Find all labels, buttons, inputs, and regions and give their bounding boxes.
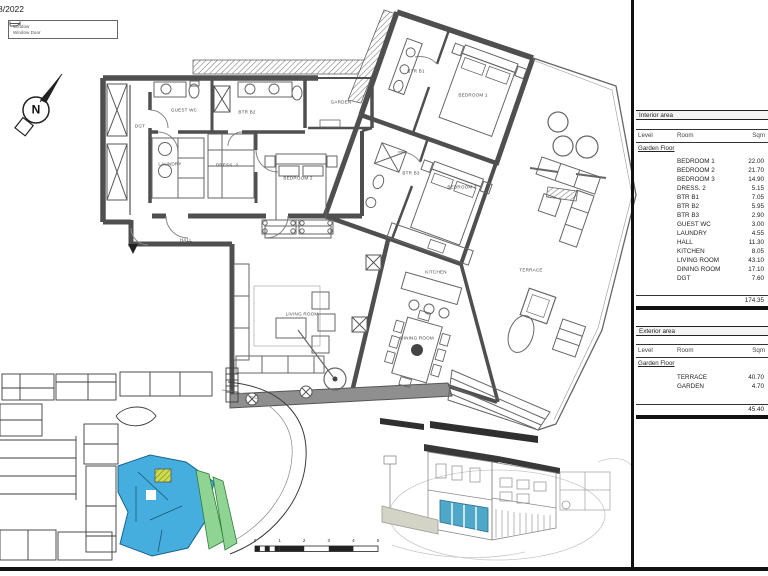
- room-name: BEDROOM 1: [677, 158, 748, 165]
- floor-plan: [103, 10, 636, 430]
- door-arcs: [131, 56, 437, 245]
- room-sqm: 4.70: [752, 383, 764, 390]
- interior-total-bar: [636, 306, 768, 310]
- room-name: DGT: [677, 275, 752, 282]
- rule: [636, 404, 768, 405]
- scale-tick-0: 0: [254, 538, 257, 543]
- room-name: DINING ROOM: [677, 266, 748, 273]
- scale-tick-2: 2: [303, 538, 306, 543]
- interior-row-bedroom-3: BEDROOM 314.90: [636, 175, 766, 184]
- room-sqm: 21.70: [748, 167, 764, 174]
- rule: [636, 295, 768, 296]
- scale-tick-1: 1: [278, 538, 281, 543]
- building-3d-sketch: [380, 418, 632, 560]
- interior-row-btr-b3: BTR B32.90: [636, 211, 766, 220]
- date-label: 8/2022: [0, 4, 24, 14]
- room-label-guest-wc: GUEST WC: [171, 108, 197, 113]
- room-label-terrace: TERRACE: [519, 268, 542, 273]
- sketch-ramp: [382, 506, 438, 534]
- interior-row-living-room: LIVING ROOM43.10: [636, 256, 766, 265]
- room-name: GARDEN: [677, 383, 752, 390]
- room-sqm: 40.70: [748, 374, 764, 381]
- terrace-area: [448, 58, 636, 430]
- room-label-btr-b2: BTR B2: [238, 110, 255, 115]
- rule: [636, 344, 768, 345]
- interior-col-room: Room: [677, 132, 694, 139]
- exterior-row-garden: GARDEN4.70: [636, 382, 766, 391]
- interior-row-kitchen: KITCHEN8.05: [636, 247, 766, 256]
- room-name: DRESS. 2: [677, 185, 752, 192]
- room-sqm: 17.10: [748, 266, 764, 273]
- interior-row-dining-room: DINING ROOM17.10: [636, 265, 766, 274]
- room-sqm: 8.05: [752, 248, 764, 255]
- room-sqm: 43.10: [748, 257, 764, 264]
- room-label-bedroom-3: BEDROOM 3: [447, 185, 476, 190]
- room-name: BTR B1: [677, 194, 752, 201]
- room-sqm: 4.55: [752, 230, 764, 237]
- room-label-hall: HALL: [180, 238, 192, 243]
- room-sqm: 14.90: [748, 176, 764, 183]
- exterior-row-terrace: TERRACE40.70: [636, 373, 766, 382]
- interior-row-dgt: DGT7.60: [636, 274, 766, 283]
- scale-bar: [255, 546, 378, 552]
- legend-window-door: Window Door: [13, 30, 117, 35]
- sheet-bottom-rule: [0, 567, 768, 571]
- interior-row-hall: HALL11.30: [636, 238, 766, 247]
- interior-row-bedroom-2: BEDROOM 221.70: [636, 166, 766, 175]
- legend-box: Window Window Door: [8, 20, 118, 39]
- interior-area-band: Interior area: [636, 110, 768, 120]
- room-name: HALL: [677, 239, 749, 246]
- room-name: TERRACE: [677, 374, 748, 381]
- room-name: KITCHEN: [677, 248, 752, 255]
- exterior-col-level: Level: [638, 347, 653, 354]
- panel-divider-line: [631, 0, 634, 570]
- drawing-layer: [0, 0, 768, 576]
- legend-window-door-label: Window Door: [13, 30, 41, 35]
- interior-row-bedroom-1: BEDROOM 122.00: [636, 157, 766, 166]
- room-sqm: 5.95: [752, 203, 764, 210]
- exterior-rows: TERRACE40.70GARDEN4.70: [636, 373, 766, 391]
- room-name: BEDROOM 2: [677, 167, 748, 174]
- interior-rows: BEDROOM 122.00BEDROOM 221.70BEDROOM 314.…: [636, 157, 766, 283]
- entry-arrow: [128, 244, 138, 254]
- room-name: BTR B3: [677, 212, 752, 219]
- room-sqm: 7.60: [752, 275, 764, 282]
- room-name: BEDROOM 3: [677, 176, 748, 183]
- interior-row-btr-b2: BTR B25.95: [636, 202, 766, 211]
- room-sqm: 11.30: [749, 239, 764, 246]
- window-door-symbol-icon: [9, 21, 21, 27]
- room-sqm: 2.90: [752, 212, 764, 219]
- exterior-level-label: Garden Floor: [638, 360, 674, 367]
- room-label-dgt: DGT: [135, 124, 145, 129]
- interior-row-laundry: LAUNDRY4.55: [636, 229, 766, 238]
- scale-tick-3: 3: [328, 538, 331, 543]
- room-label-garden: GARDEN: [331, 100, 352, 105]
- room-sqm: 3.00: [752, 221, 764, 228]
- interior-level-label: Garden Floor: [638, 145, 674, 152]
- scale-tick-4: 4: [352, 538, 355, 543]
- room-label-living-room: LIVING ROOM: [286, 312, 319, 317]
- exterior-total: 45.40: [636, 406, 766, 413]
- interior-col-sqm: Sqm: [752, 132, 765, 139]
- room-sqm: 7.05: [752, 194, 764, 201]
- room-label-btr-b1: BTR B1: [407, 69, 424, 74]
- interior-row-btr-b1: BTR B17.05: [636, 193, 766, 202]
- interior-col-level: Level: [638, 132, 653, 139]
- room-name: LAUNDRY: [677, 230, 752, 237]
- exterior-col-room: Room: [677, 347, 694, 354]
- room-label-kitchen: KITCHEN: [425, 270, 447, 275]
- interior-total: 174.35: [636, 297, 766, 304]
- exterior-col-sqm: Sqm: [752, 347, 765, 354]
- room-label-bedroom-1: BEDROOM 1: [458, 93, 487, 98]
- room-name: GUEST WC: [677, 221, 752, 228]
- room-label-laundry: LAUNDRY: [158, 162, 181, 167]
- room-sqm: 5.15: [752, 185, 764, 192]
- north-arrow-label: N: [32, 103, 41, 117]
- south-wall-band: [230, 383, 452, 408]
- room-name: LIVING ROOM: [677, 257, 748, 264]
- room-label-dress-2: DRESS. 2: [216, 163, 239, 168]
- room-name: BTR B2: [677, 203, 752, 210]
- floorplan-sheet: 8/2022 Window Window Door N DGTGUEST WCB…: [0, 0, 768, 576]
- exterior-area-band: Exterior area: [636, 326, 768, 336]
- legend-window: Window: [13, 24, 117, 29]
- room-sqm: 22.00: [748, 158, 764, 165]
- interior-row-guest-wc: GUEST WC3.00: [636, 220, 766, 229]
- room-label-dining-room: DINING ROOM: [400, 336, 434, 341]
- exterior-total-bar: [636, 415, 768, 419]
- scale-tick-5: 5: [377, 538, 380, 543]
- room-label-bedroom-2: BEDROOM 2: [283, 176, 312, 181]
- garden-hatch-square: [155, 469, 171, 482]
- rule: [636, 129, 768, 130]
- rule: [636, 357, 768, 358]
- room-label-btr-b3: BTR B3: [402, 171, 419, 176]
- rule: [636, 142, 768, 143]
- interior-row-dress-2: DRESS. 25.15: [636, 184, 766, 193]
